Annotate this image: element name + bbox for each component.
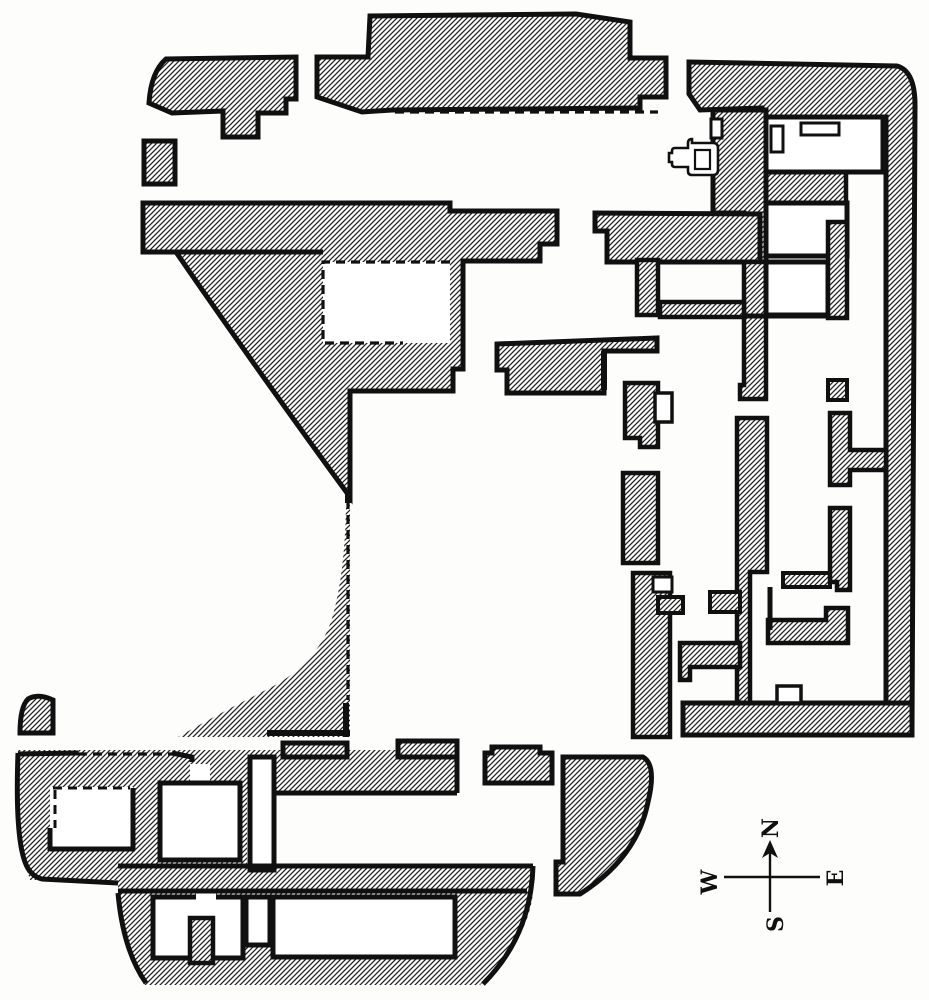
- wall-pier-rc1-foot: [828, 380, 847, 400]
- room-bl-long: [273, 897, 455, 957]
- compass-west-label: W: [697, 869, 723, 895]
- floor-plan-svg: NSWE: [0, 0, 929, 1000]
- scanned-plan-page: NSWE: [0, 0, 929, 1000]
- wall-sliver-courtyard-west: [178, 505, 350, 737]
- niche-top-room-tr-1: [801, 123, 839, 135]
- door-tick-hall: [711, 119, 722, 138]
- wall-vertical-r3: [740, 262, 766, 399]
- compass-north-label: N: [758, 818, 784, 838]
- wall-band-bottom-east: [683, 703, 912, 735]
- outline-bl-top-west: [18, 753, 78, 754]
- wall-arm-a1: [710, 592, 740, 612]
- wall-bump-top1: [283, 743, 347, 757]
- compass-south-label: S: [763, 916, 789, 932]
- wall-band-under-room1: [766, 172, 846, 203]
- room-restored-dashed: [323, 262, 450, 343]
- niche-strip-left3: [653, 577, 672, 592]
- passage-bl-2: [246, 897, 270, 945]
- wall-corner-piece-west: [20, 696, 53, 733]
- compass-east-label: E: [823, 870, 849, 887]
- wall-l-rc2: [830, 413, 886, 485]
- niche-band-bottom: [777, 686, 801, 703]
- wall-square-west: [144, 141, 175, 184]
- wall-pier-m1: [637, 260, 658, 315]
- wall-band-corridor-south-east: [595, 213, 760, 262]
- wall-arm-left3: [658, 597, 683, 613]
- wall-pier-in-room3: [190, 918, 213, 963]
- wall-strip-rc3: [830, 508, 850, 590]
- niche-strip-left1: [655, 393, 672, 422]
- wall-pier-detached: [485, 747, 552, 783]
- wall-strip-left1: [625, 383, 658, 447]
- wall-bump-top2: [398, 741, 457, 757]
- wall-band-m3: [660, 302, 744, 317]
- niche-room-tr-1: [771, 126, 783, 152]
- wall-block-northwest: [149, 57, 296, 137]
- wall-arm-a2: [680, 643, 740, 680]
- wall-arm-east: [783, 573, 830, 587]
- passage-bl-1: [250, 757, 274, 870]
- room-bl-1: [50, 787, 133, 851]
- wall-strip-left2: [623, 473, 658, 563]
- door-gap-topband: [190, 764, 210, 783]
- wall-vertical-central-tall: [737, 418, 767, 723]
- wall-lobe-curved-southeast: [556, 757, 652, 894]
- wall-pier-rc1: [828, 222, 847, 318]
- wall-block-north-center: [317, 14, 666, 112]
- wall-band-rc4: [768, 608, 848, 643]
- room-bl-2: [160, 783, 240, 860]
- room-tr-3: [766, 262, 828, 315]
